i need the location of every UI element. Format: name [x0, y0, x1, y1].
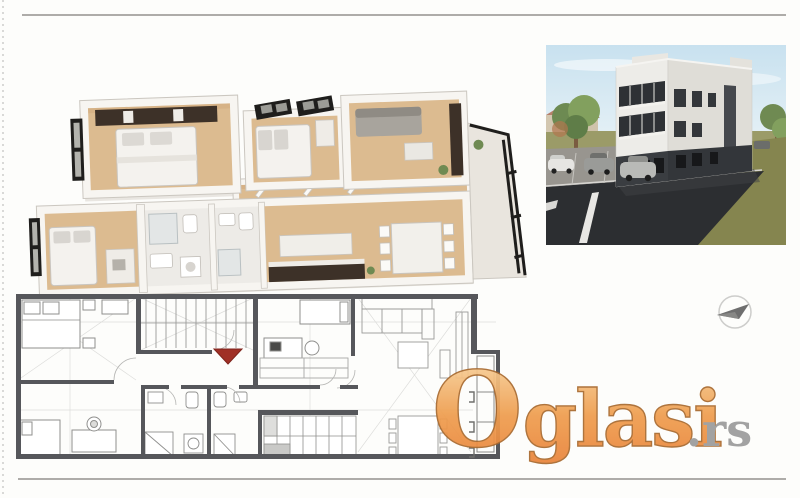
bedroom-b-3d [243, 95, 348, 191]
watermark-brand: Oglasi [432, 362, 721, 471]
desk [72, 430, 116, 452]
living-room-3d [341, 91, 470, 189]
bedroom-a-3d [70, 95, 241, 199]
lower-rooms-3d [28, 191, 473, 295]
bed-double [22, 300, 128, 348]
bedroom-2-furniture [264, 300, 350, 358]
watermark-tld: .rs [686, 403, 752, 457]
car [754, 141, 770, 149]
bed-single [20, 417, 116, 456]
oglasi-watermark: Oglasi .rs [424, 362, 789, 474]
listing-image: Oglasi .rs [0, 0, 800, 498]
left-perforation-texture [2, 0, 4, 498]
bottom-divider-line [18, 478, 786, 480]
chair [305, 341, 319, 355]
north-arrow-icon [708, 286, 762, 340]
balcony-3d [468, 121, 526, 279]
bathroom-fixtures [145, 392, 247, 456]
kitchen-cabinets [264, 416, 356, 456]
top-divider-line [22, 14, 786, 16]
window-icon [29, 218, 42, 276]
window-icon [70, 119, 84, 181]
building-exterior-render [546, 45, 786, 245]
entrance-arrow-icon [214, 349, 242, 364]
floorplan-3d-render [8, 90, 533, 295]
